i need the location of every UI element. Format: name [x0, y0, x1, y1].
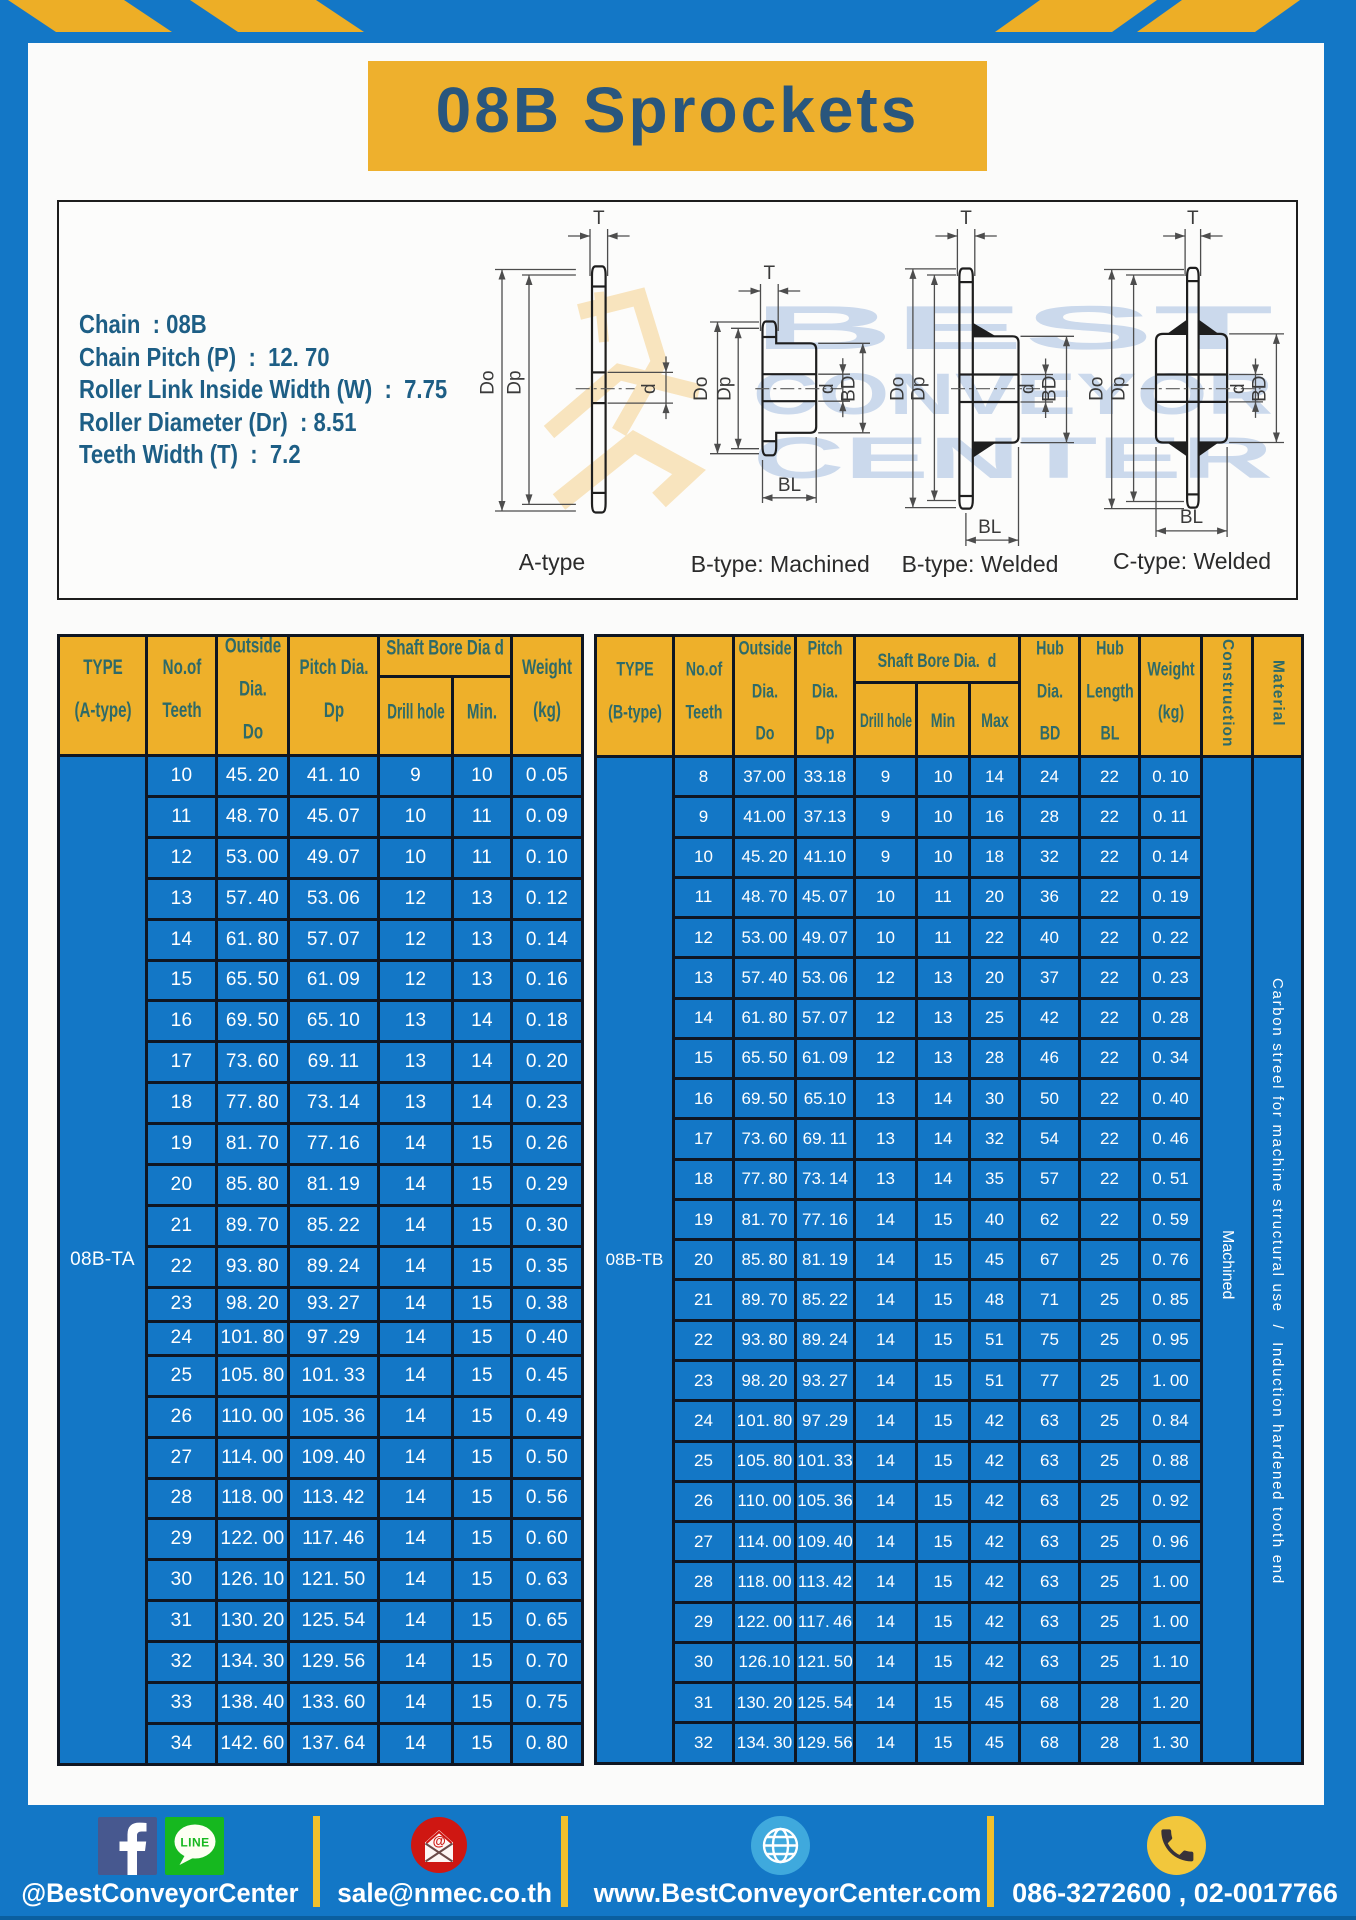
svg-text:Dp: Dp	[504, 370, 525, 394]
svg-text:T: T	[960, 208, 972, 229]
svg-text:@: @	[433, 1834, 446, 1849]
svg-text:Dp: Dp	[714, 377, 735, 401]
svg-text:Do: Do	[1087, 377, 1108, 401]
svg-text:LINE: LINE	[180, 1836, 209, 1850]
svg-text:Do: Do	[478, 370, 499, 394]
svg-text:Dp: Dp	[909, 377, 930, 401]
svg-text:d: d	[817, 383, 838, 394]
svg-text:T: T	[593, 208, 605, 229]
svg-text:T: T	[1187, 208, 1199, 229]
svg-text:BEST: BEST	[753, 294, 1273, 363]
svg-text:d: d	[639, 383, 660, 394]
svg-text:BD: BD	[1040, 375, 1061, 401]
svg-text:BL: BL	[778, 475, 801, 496]
svg-text:Do: Do	[691, 377, 712, 401]
svg-text:d: d	[1017, 383, 1038, 394]
svg-text:Dp: Dp	[1109, 377, 1130, 401]
svg-text:BD: BD	[839, 375, 860, 401]
svg-text:T: T	[764, 263, 776, 284]
svg-text:CENTER: CENTER	[753, 426, 1273, 491]
svg-text:BL: BL	[978, 517, 1001, 538]
svg-text:B-type: Machined: B-type: Machined	[691, 551, 870, 577]
svg-text:B-type: Welded: B-type: Welded	[902, 551, 1059, 577]
svg-text:Do: Do	[887, 377, 908, 401]
svg-text:A-type: A-type	[519, 549, 585, 575]
svg-text:C-type: Welded: C-type: Welded	[1113, 548, 1271, 574]
svg-text:BL: BL	[1180, 507, 1203, 528]
svg-text:d: d	[1228, 383, 1249, 394]
svg-text:BD: BD	[1250, 375, 1271, 401]
